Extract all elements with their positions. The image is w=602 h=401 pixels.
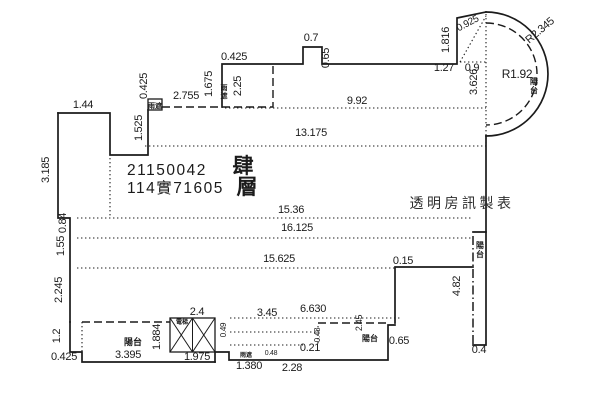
balcony-arc-label: 陽台: [530, 76, 538, 95]
dim-2-4: 2.4: [190, 306, 205, 318]
dim-0-65-bottom: 0.65: [389, 335, 409, 347]
floor-char-2: 層: [237, 175, 258, 199]
dim-0-65-top: 0.65: [320, 48, 332, 68]
dim-2-245: 2.245: [53, 277, 65, 303]
dim-1-55: 1.55: [55, 236, 67, 256]
dim-0-15: 0.15: [393, 255, 413, 267]
dim-2-45: 2.45: [354, 315, 364, 332]
dim-15-36: 15.36: [278, 204, 304, 216]
dim-15-625: 15.625: [263, 253, 295, 265]
dim-1-975: 1.975: [184, 351, 210, 363]
dim-1-27: 1.27: [434, 62, 454, 74]
balcony-br-label: 陽台: [362, 333, 378, 343]
dim-3-395: 3.395: [115, 349, 141, 361]
dim-3-185: 3.185: [40, 157, 52, 183]
elevator-label: 電梯: [176, 318, 188, 326]
floor-plan-page: 1.443.1851.5250.4252.7551.6752.250.4250.…: [0, 0, 602, 401]
dim-4-82: 4.82: [451, 276, 463, 296]
planter-label: 雨遮: [148, 101, 162, 110]
micro-label-a: 雨遮: [240, 351, 252, 359]
dim-0-21: 0.21: [300, 342, 320, 354]
dim-0-48: 0.48: [313, 327, 322, 342]
case-number: 21150042: [127, 162, 207, 179]
dim-1-675: 1.675: [203, 71, 215, 97]
outline-top-edge: [222, 12, 486, 107]
dim-3-626: 3.626: [468, 69, 480, 95]
dim-1-380: 1.380: [236, 360, 262, 372]
dim-9-92: 9.92: [347, 95, 367, 107]
floor-plan-drawing: 1.443.1851.5250.4252.7551.6752.250.4250.…: [0, 0, 602, 401]
balcony-bl-label: 陽台: [124, 336, 142, 347]
micro-label-b: 0.48: [265, 350, 278, 357]
dim-1-2: 1.2: [51, 329, 63, 344]
dim-2-25: 2.25: [232, 76, 244, 96]
dim-0-7: 0.7: [304, 32, 319, 44]
radius-inner: R1.92: [502, 67, 533, 81]
dim-2-28: 2.28: [282, 362, 302, 374]
balcony-right-label: 陽台: [476, 240, 484, 259]
dim-2-755: 2.755: [173, 90, 199, 102]
dim-0-425-left: 0.425: [138, 73, 150, 99]
outline-right-wall: [473, 136, 486, 232]
watermark: 透明房訊製表: [410, 196, 515, 212]
dim-16-125: 16.125: [281, 222, 313, 234]
dim-0-49: 0.49: [219, 322, 228, 337]
dim-0-84: 0.84: [57, 213, 69, 233]
dim-6-630: 6.630: [300, 303, 326, 315]
dim-1-44: 1.44: [73, 99, 93, 111]
dim-13-175: 13.175: [295, 127, 327, 139]
radius-outer: R2.345: [523, 15, 557, 46]
dim-0-425-top: 0.425: [221, 51, 247, 63]
dim-0-425-bl: 0.425: [51, 351, 77, 363]
file-number: 114實71605: [127, 178, 224, 197]
dim-1-816: 1.816: [440, 27, 452, 53]
dim-1-525: 1.525: [133, 115, 145, 141]
dim-1-884: 1.884: [151, 324, 163, 350]
dim-3-45: 3.45: [257, 307, 277, 319]
dim-0-4: 0.4: [472, 344, 487, 356]
